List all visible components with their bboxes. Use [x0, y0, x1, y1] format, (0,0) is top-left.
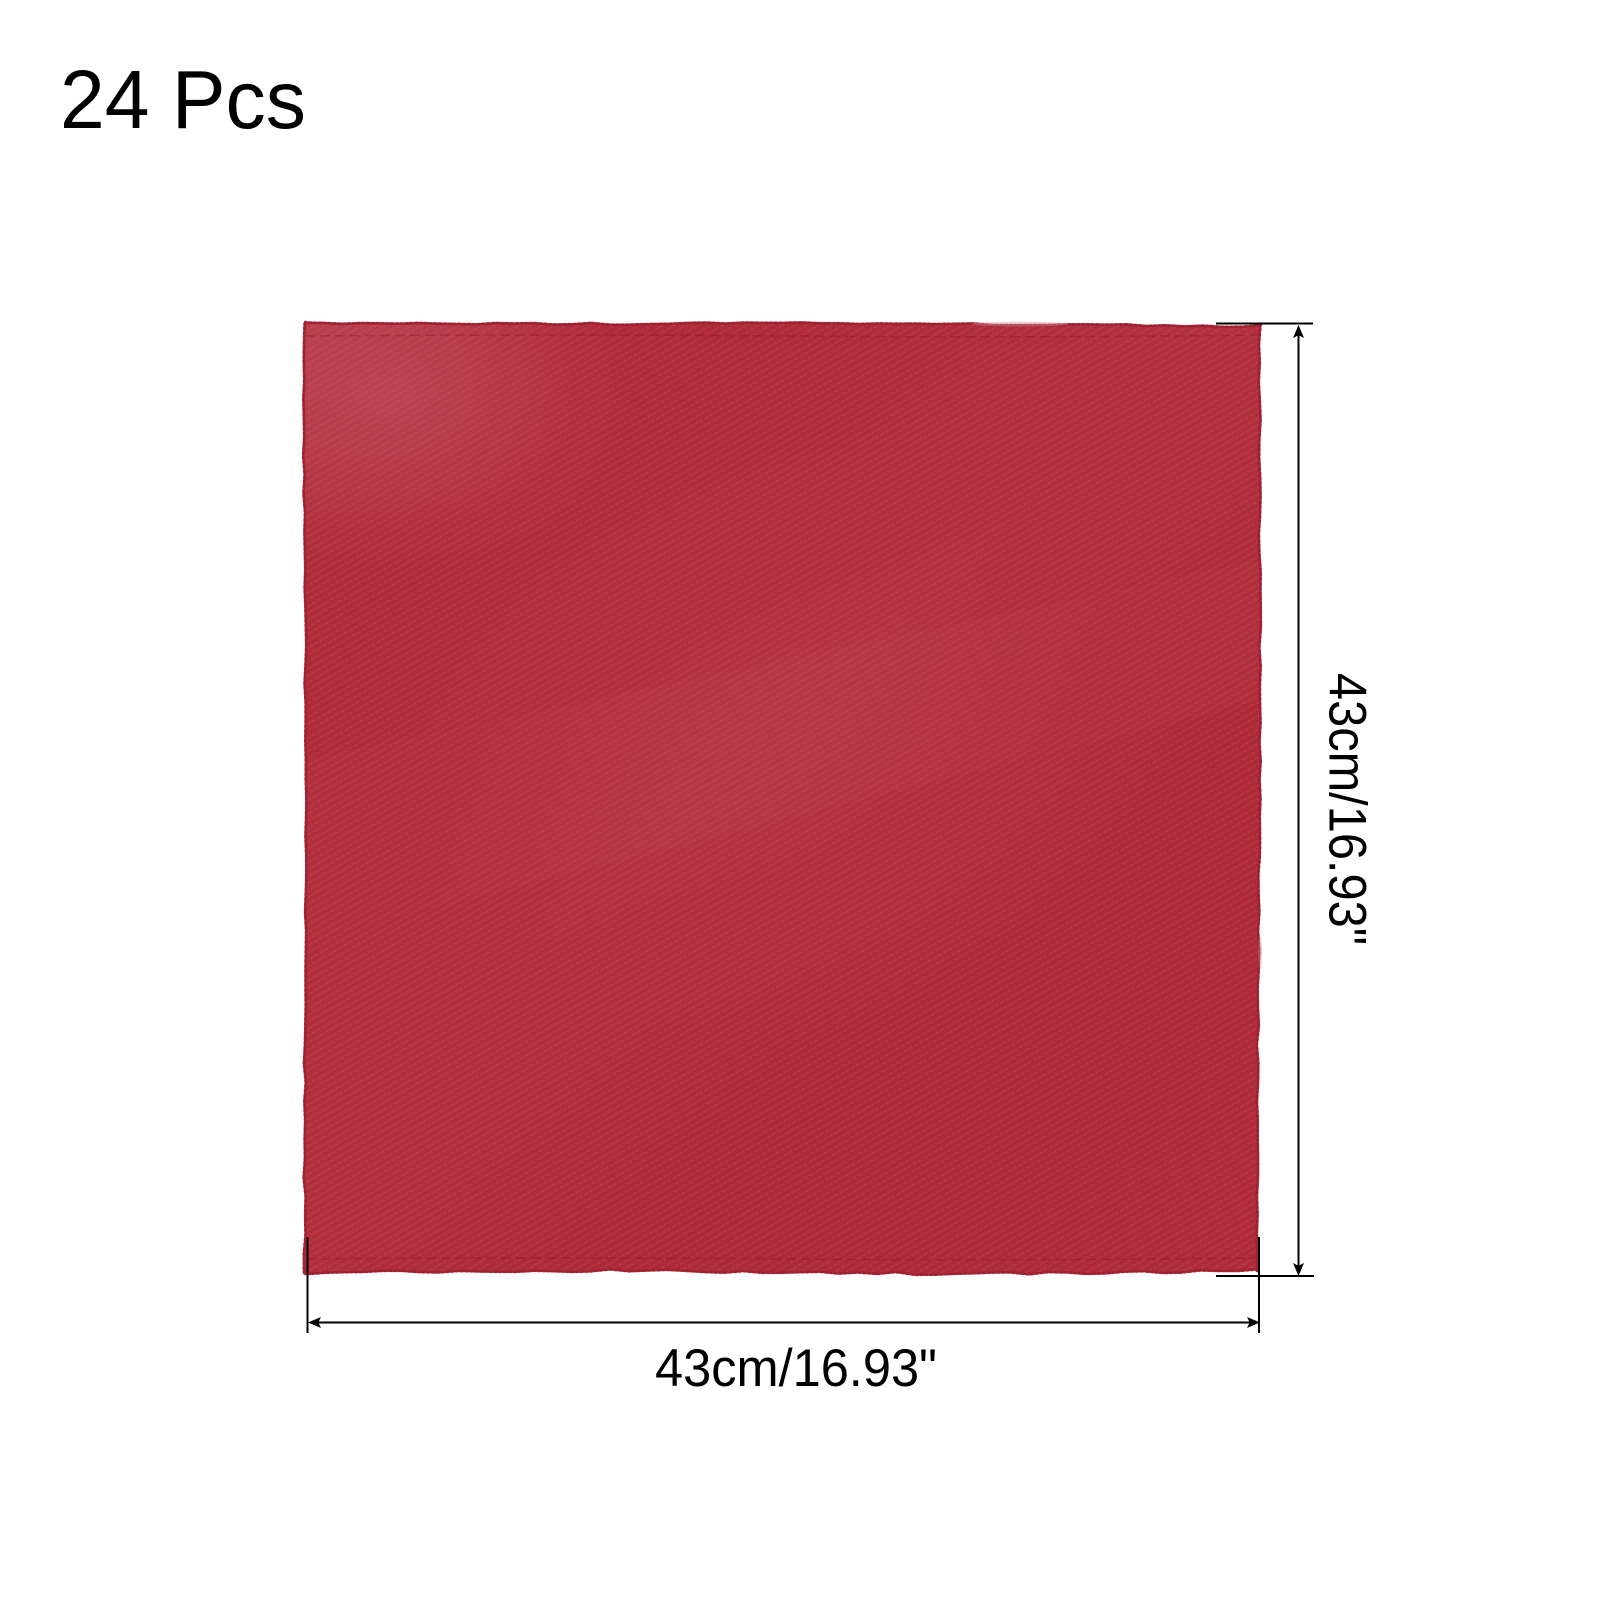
svg-text:43cm/16.93": 43cm/16.93" [1318, 673, 1377, 945]
svg-text:43cm/16.93": 43cm/16.93" [655, 1339, 937, 1398]
svg-text:24 Pcs: 24 Pcs [60, 53, 306, 146]
